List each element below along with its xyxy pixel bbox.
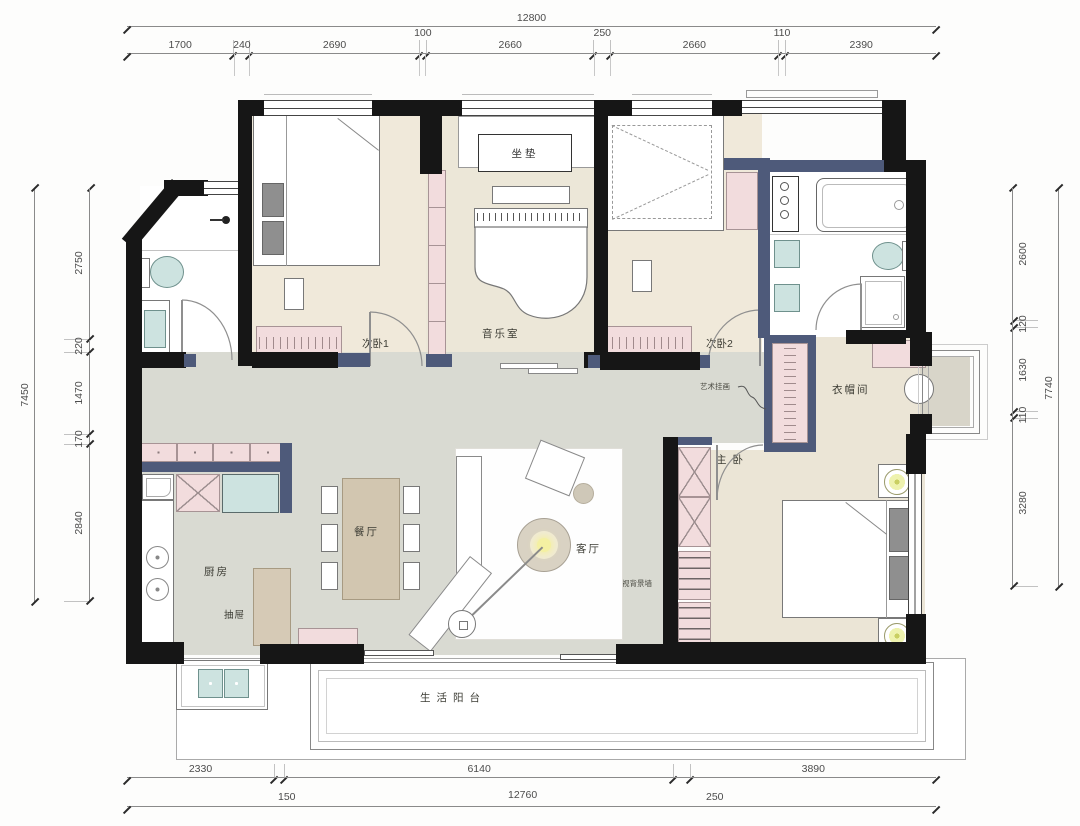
dim-cell: 2840 [64,445,90,602]
music-room-label: 音乐室 [482,326,520,341]
cushion-label: 坐垫 [512,146,539,161]
dim-value: 2660 [499,39,522,51]
washer-knob [780,196,789,205]
tv-wall [663,437,678,655]
dim-right-segments: 2600 120 1630 110 3280 [1012,188,1038,587]
bathroom-divider-line [140,250,238,251]
door-leaf [181,300,183,360]
dim-right-total-line: 7740 [1058,188,1059,587]
dim-cell: 2750 [64,188,90,340]
side-table [573,483,594,504]
washer-knob [780,210,789,219]
dim-bottom-sub: 12760 [508,789,537,801]
balcony-label: 生活阳台 [420,690,486,705]
dim-cell: 1700 [127,40,234,54]
partition-wall [338,353,370,367]
dim-cell: 1630 [1012,328,1038,412]
dim-top-total: 12800 [517,12,546,24]
partition-wall [140,462,292,472]
wall-segment [616,644,666,664]
tatami-dashed-outline [612,125,712,219]
wall-segment [600,352,700,370]
pillow [889,556,909,600]
window [264,100,372,116]
window-frame-line [462,94,594,95]
piano-bench [492,186,570,204]
partition-wall [678,437,712,445]
extension-line [785,54,786,76]
storage-cabinet-x [678,447,711,497]
bench-cushion [213,443,250,462]
wall-segment [594,113,608,352]
piano-keyboard [474,208,588,228]
dim-top-segments: 1700 240 2690 100 2660 250 2660 110 2390 [127,40,936,54]
dim-value: 1700 [169,39,192,51]
dim-value: 100 [414,27,432,39]
kitchen-sink-basin [146,478,171,497]
wall-segment [140,352,186,368]
wall-segment [252,352,338,368]
bed-headboard-line [886,500,887,618]
bookshelf-music-room [428,170,446,360]
wall-segment [906,434,926,474]
window-frame-line [632,94,712,95]
pillow [889,508,909,552]
washer-knob [780,182,789,191]
door-leaf [860,284,862,330]
tall-cabinet [253,568,291,646]
pillow [262,221,284,255]
desk-bedroom-2 [632,260,652,292]
dim-value: 2690 [323,39,346,51]
partition-wall [700,355,710,368]
door-arc-bedroom-2 [708,310,760,366]
window [908,474,922,614]
sliding-door-panel [364,650,434,656]
partition-wall [588,355,600,368]
bay-window-inner [928,356,974,428]
sink-bathroom-1 [144,310,166,348]
extension-line [419,54,420,76]
storage-cabinet-x [678,497,711,547]
wall-segment [664,642,926,664]
dim-value: 240 [233,39,251,51]
partition-wall [280,443,292,513]
wall-corner [126,642,184,664]
living-label: 客厅 [576,541,601,556]
laundry-inner-frame [181,665,265,707]
wall-segment [846,330,906,344]
arc-lamp-base-core [459,621,468,630]
corridor-wardrobe [772,343,808,443]
drawer-label: 抽屉 [224,607,245,621]
wall-segment [420,116,442,174]
dim-left-total: 7450 [19,383,31,406]
dim-cell: 220 [64,340,90,353]
dining-chair [321,562,338,590]
wall-segment [906,160,926,338]
sink-bathroom-2 [774,240,800,268]
cabinet-bedroom-2 [726,172,758,230]
door-arc-master [717,445,763,500]
wall-segment [910,332,932,366]
wall-segment [910,414,932,434]
dim-cell: 250 [594,40,611,54]
door-arc-bathroom-1 [182,300,232,360]
dining-label: 餐厅 [354,524,379,539]
wall-segment [126,236,142,656]
dim-value: 110 [774,27,791,39]
dim-cell [674,764,691,778]
laundry-sink-right [224,669,249,698]
wall-corner [882,100,906,172]
window [742,100,882,114]
cushion-box: 坐垫 [478,134,572,172]
window [462,100,594,116]
art-painting-leader [738,385,768,411]
dim-bottom-segments: 2330 6140 3890 [127,764,936,778]
dim-bottom-sub: 150 [278,791,296,803]
window [632,100,712,116]
dim-right-total: 7740 [1043,376,1055,399]
dim-cell: 2660 [611,40,778,54]
dim-value: 1630 [1017,358,1029,381]
door-leaf [716,445,718,500]
laundry-sink-left [198,669,223,698]
bathtub-drain [894,200,904,210]
dim-top-total-line: 12800 [127,26,936,27]
extension-line [610,54,611,76]
toilet-bowl [872,242,904,270]
dim-cell: 1470 [64,353,90,435]
dim-value: 2660 [683,39,706,51]
dim-value: 3890 [802,763,825,775]
dim-cell: 110 [779,40,787,54]
extension-line [594,54,595,76]
door-threshold [528,368,578,374]
bench-cushion [140,443,177,462]
window-frame-line [264,94,372,95]
dim-cell: 2660 [427,40,594,54]
extension-line [234,54,235,76]
dim-bottom-total-line [127,806,936,807]
grand-piano-body [474,227,588,327]
dim-cell [275,764,285,778]
shower-drain [893,314,899,320]
dining-chair [321,486,338,514]
sliding-door-panel [560,654,618,660]
art-painting-label: 艺术挂画 [700,381,730,392]
dining-chair [403,486,420,514]
bed-headboard-line [286,114,287,266]
wall-segment [260,644,364,664]
balcony-inner-frame-2 [326,678,918,734]
dim-cell: 6140 [285,764,673,778]
dim-left-total-line: 7450 [34,188,35,602]
dim-cell: 100 [420,40,427,54]
dim-cell: 170 [64,435,90,445]
wall-segment [164,180,208,196]
partition-wall [770,160,884,172]
dim-value: 2600 [1017,242,1029,265]
wall-segment [372,100,462,116]
dim-value: 2390 [850,39,873,51]
dim-cell: 240 [234,40,250,54]
bathroom-divider-line [770,234,906,235]
bench-cushion [177,443,214,462]
dim-cell: 2690 [250,40,419,54]
kitchen-counter [140,500,174,646]
dim-left-segments: 2750 220 1470 170 2840 [64,188,90,602]
floor-plan: 12800 1700 240 2690 100 2660 250 2660 11… [0,0,1080,826]
dining-table [342,478,400,600]
toilet-bowl [150,256,184,288]
desk-bedroom-1 [284,278,304,310]
cloakroom-label: 衣帽间 [832,382,870,397]
sink-bathroom-2 [774,284,800,312]
fridge [222,474,279,513]
partition-wall [724,158,760,170]
door-arc-bedroom-1 [370,312,422,366]
dim-cell: 110 [1012,412,1038,419]
storage-drawers [678,551,711,600]
wall-segment [712,100,742,116]
dim-value: 250 [594,27,612,39]
partition-wall [426,354,452,367]
dim-value: 1470 [73,382,85,405]
dim-value: 6140 [467,763,490,775]
dim-value: 2330 [189,763,212,775]
extension-line [778,54,779,76]
extension-line [249,54,250,76]
pillow [262,183,284,217]
door-arc-bathroom-2 [816,284,862,330]
dining-chair [321,524,338,552]
dim-cell: 2600 [1012,188,1038,321]
dim-cell: 120 [1012,321,1038,328]
stove-burner [146,546,169,569]
partition-wall [758,158,770,338]
window-frame-line [746,90,878,98]
dining-chair [403,524,420,552]
kitchen-bench-row [140,443,286,462]
shower-arm [210,219,224,221]
extension-line [425,54,426,76]
dim-value: 2840 [73,511,85,534]
dim-cell: 3280 [1012,419,1038,587]
dining-chair [403,562,420,590]
stove-burner [146,578,169,601]
dim-value: 3280 [1017,491,1029,514]
kitchen-cabinet-x [176,474,220,512]
dim-cell: 2390 [786,40,936,54]
window [204,181,240,195]
dim-bottom-sub: 250 [706,791,724,803]
dim-cell: 3890 [691,764,936,778]
dim-cell: 2330 [127,764,275,778]
dim-value: 2750 [73,252,85,275]
kitchen-label: 厨房 [204,564,229,579]
partition-wall [184,354,196,367]
wall-segment [238,113,252,366]
